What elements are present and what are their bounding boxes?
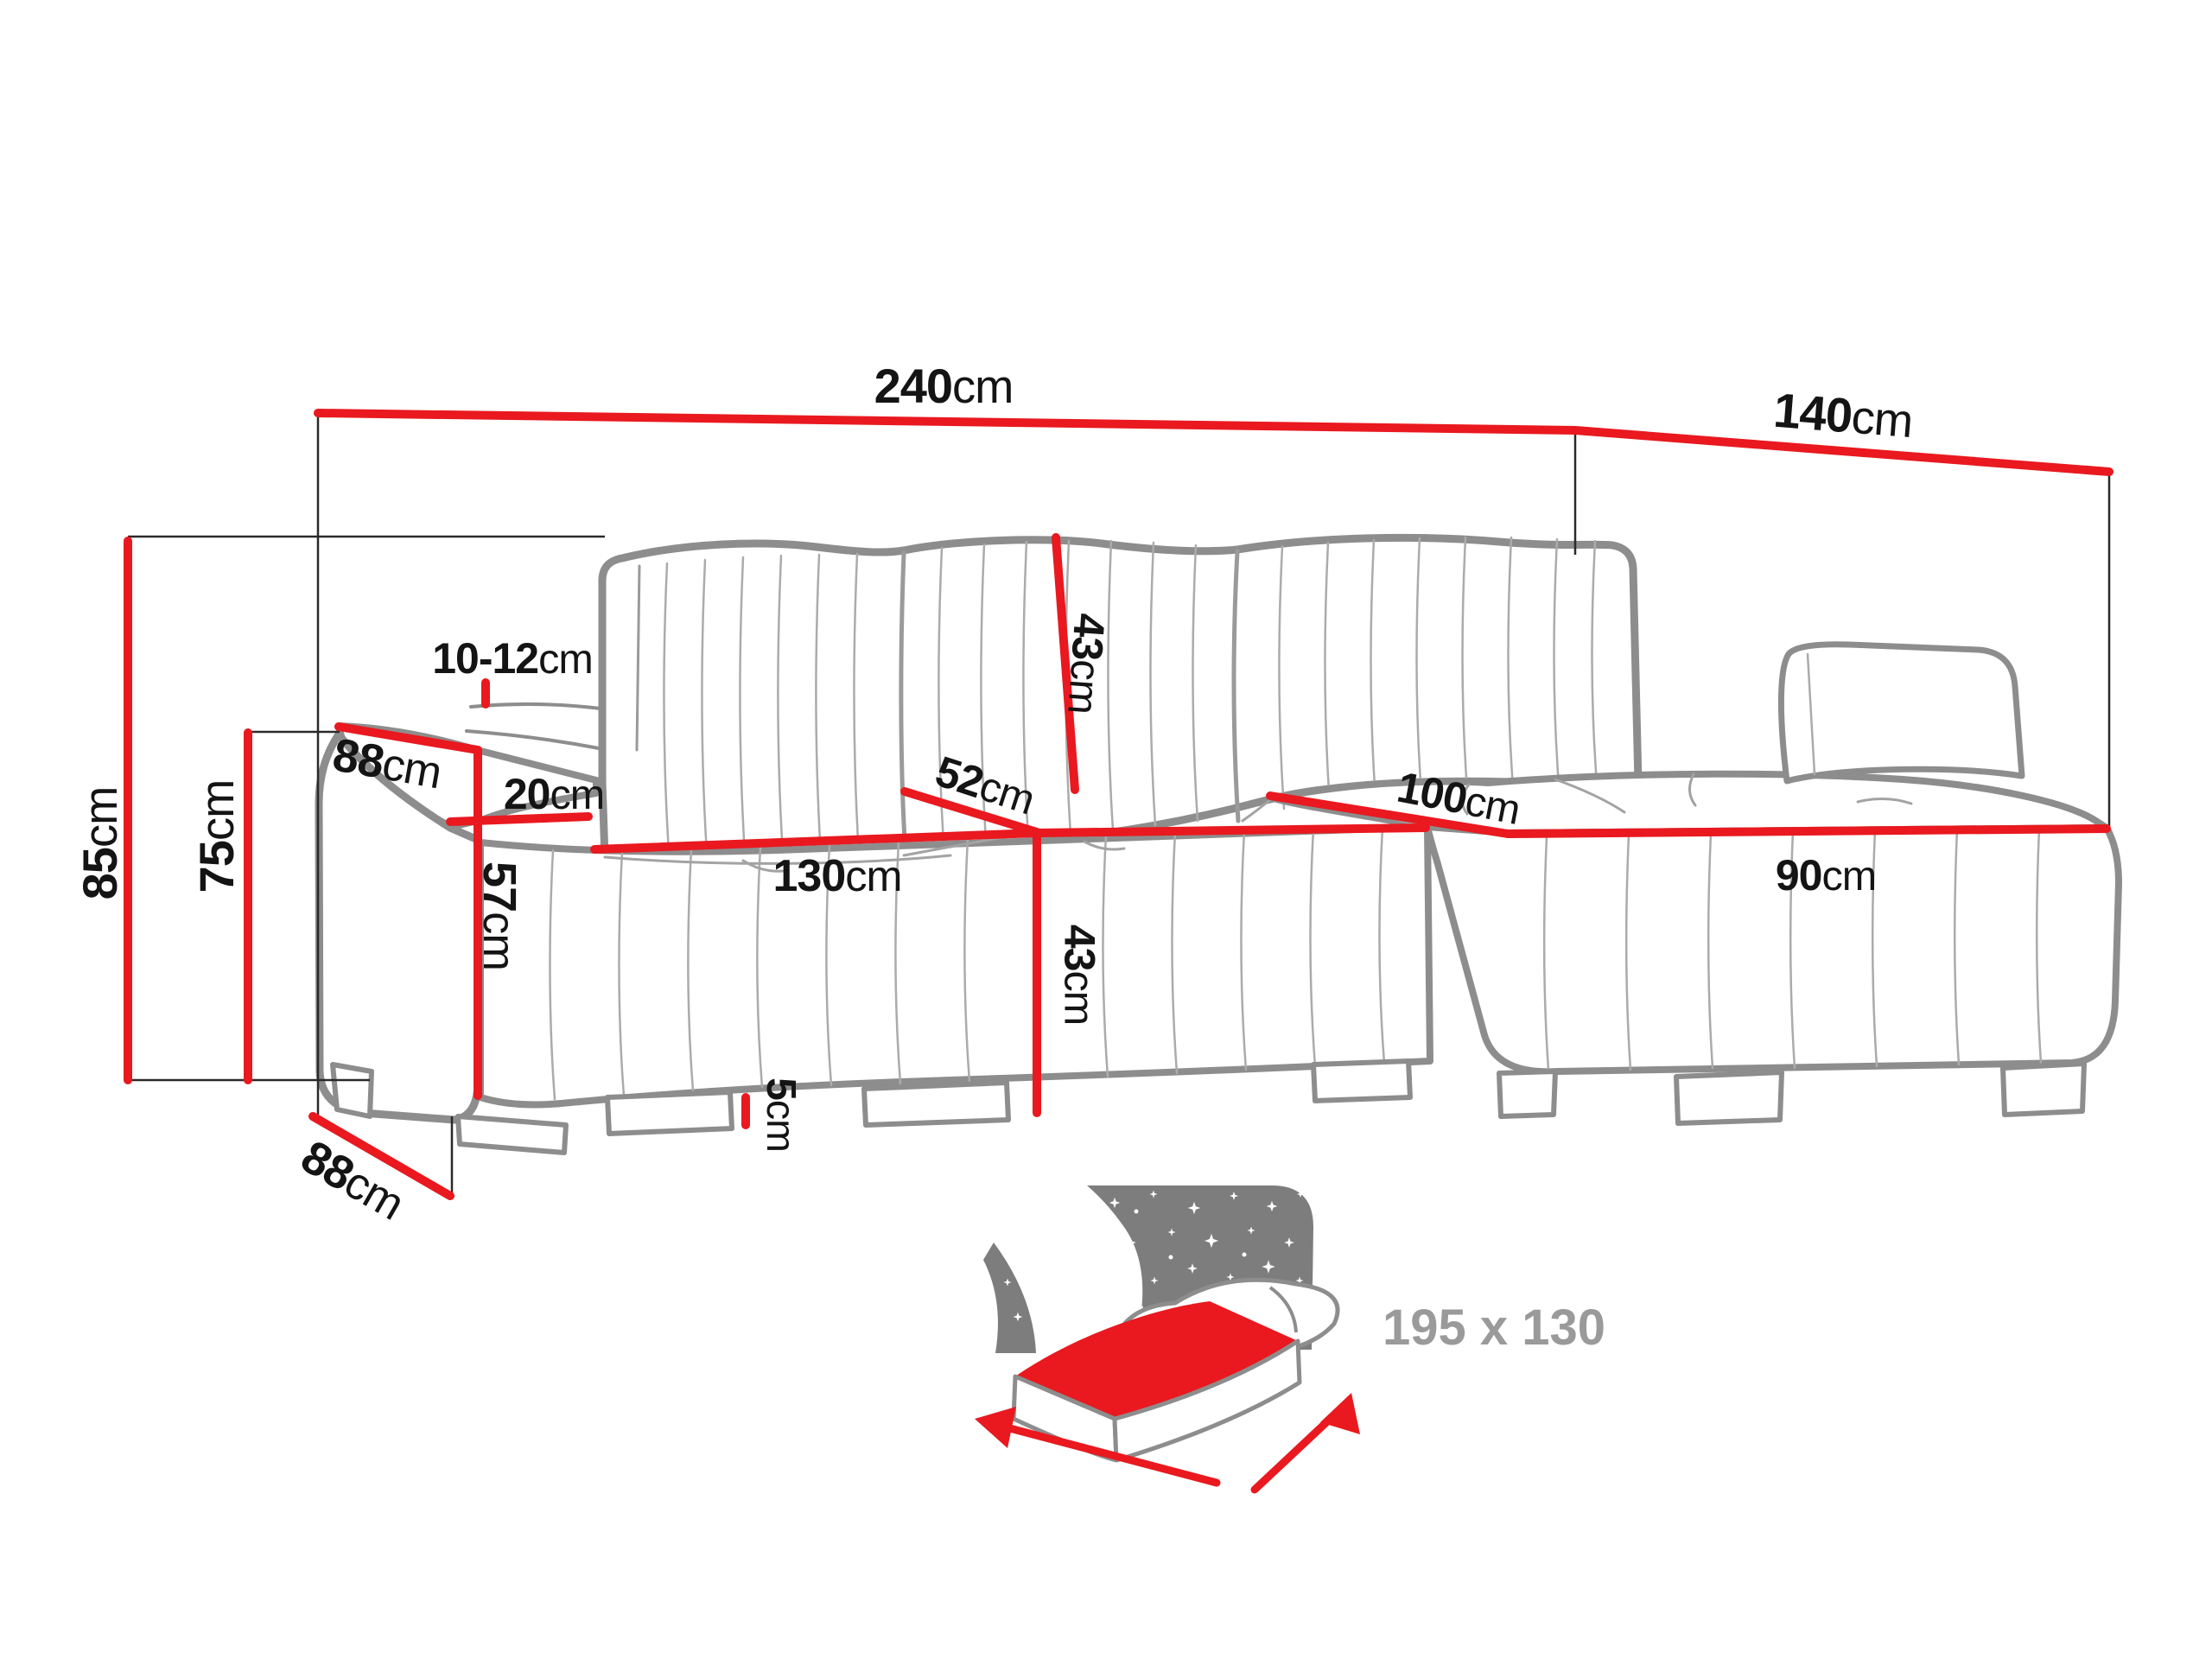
seat-front	[480, 827, 1430, 1104]
dim-total-height: 85cm	[76, 787, 124, 900]
dim-back-cushion: 43cm	[1061, 612, 1111, 715]
chaise-side-cushion	[1781, 645, 2022, 781]
dim-arm-width: 20cm	[504, 772, 604, 817]
sofa-line-art	[0, 0, 2212, 1659]
dim-total-depth: 140cm	[1772, 386, 1915, 446]
dim-seat-front-width: 130cm	[773, 854, 902, 899]
dim-chaise-width: 90cm	[1776, 854, 1876, 898]
sofa-dimensions-diagram: 240cm 140cm 85cm 75cm 88cm 10-12cm 20cm …	[0, 0, 2212, 1659]
dim-arm-height: 57cm	[476, 861, 523, 970]
dim-headrest-gap: 10-12cm	[432, 637, 593, 681]
dim-backrest-height: 75cm	[193, 780, 241, 893]
sleeping-area-size: 195 x 130	[1382, 1303, 1605, 1353]
dim-total-width: 240cm	[874, 362, 1014, 410]
sofa-drawing	[319, 537, 2119, 1153]
dim-foot-height: 5cm	[760, 1077, 801, 1152]
moon-swoosh-icon	[983, 1243, 1036, 1353]
chaise-front	[1427, 827, 2119, 1071]
dim-seat-height: 43cm	[1058, 925, 1102, 1025]
sleeping-function-icon	[975, 1185, 1360, 1490]
